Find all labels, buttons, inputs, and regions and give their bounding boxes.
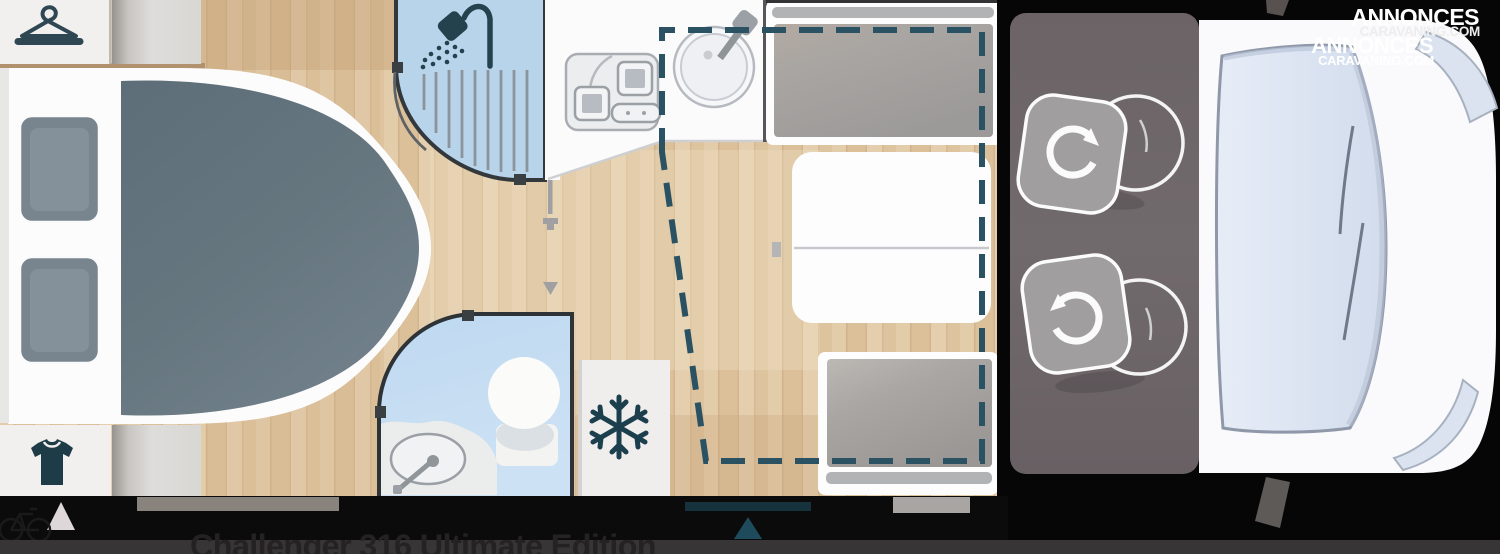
- svg-text:CARAVANING.COM: CARAVANING.COM: [1318, 53, 1434, 68]
- svg-text:Challenger 316 Ultimate Editio: Challenger 316 Ultimate Edition: [190, 528, 656, 554]
